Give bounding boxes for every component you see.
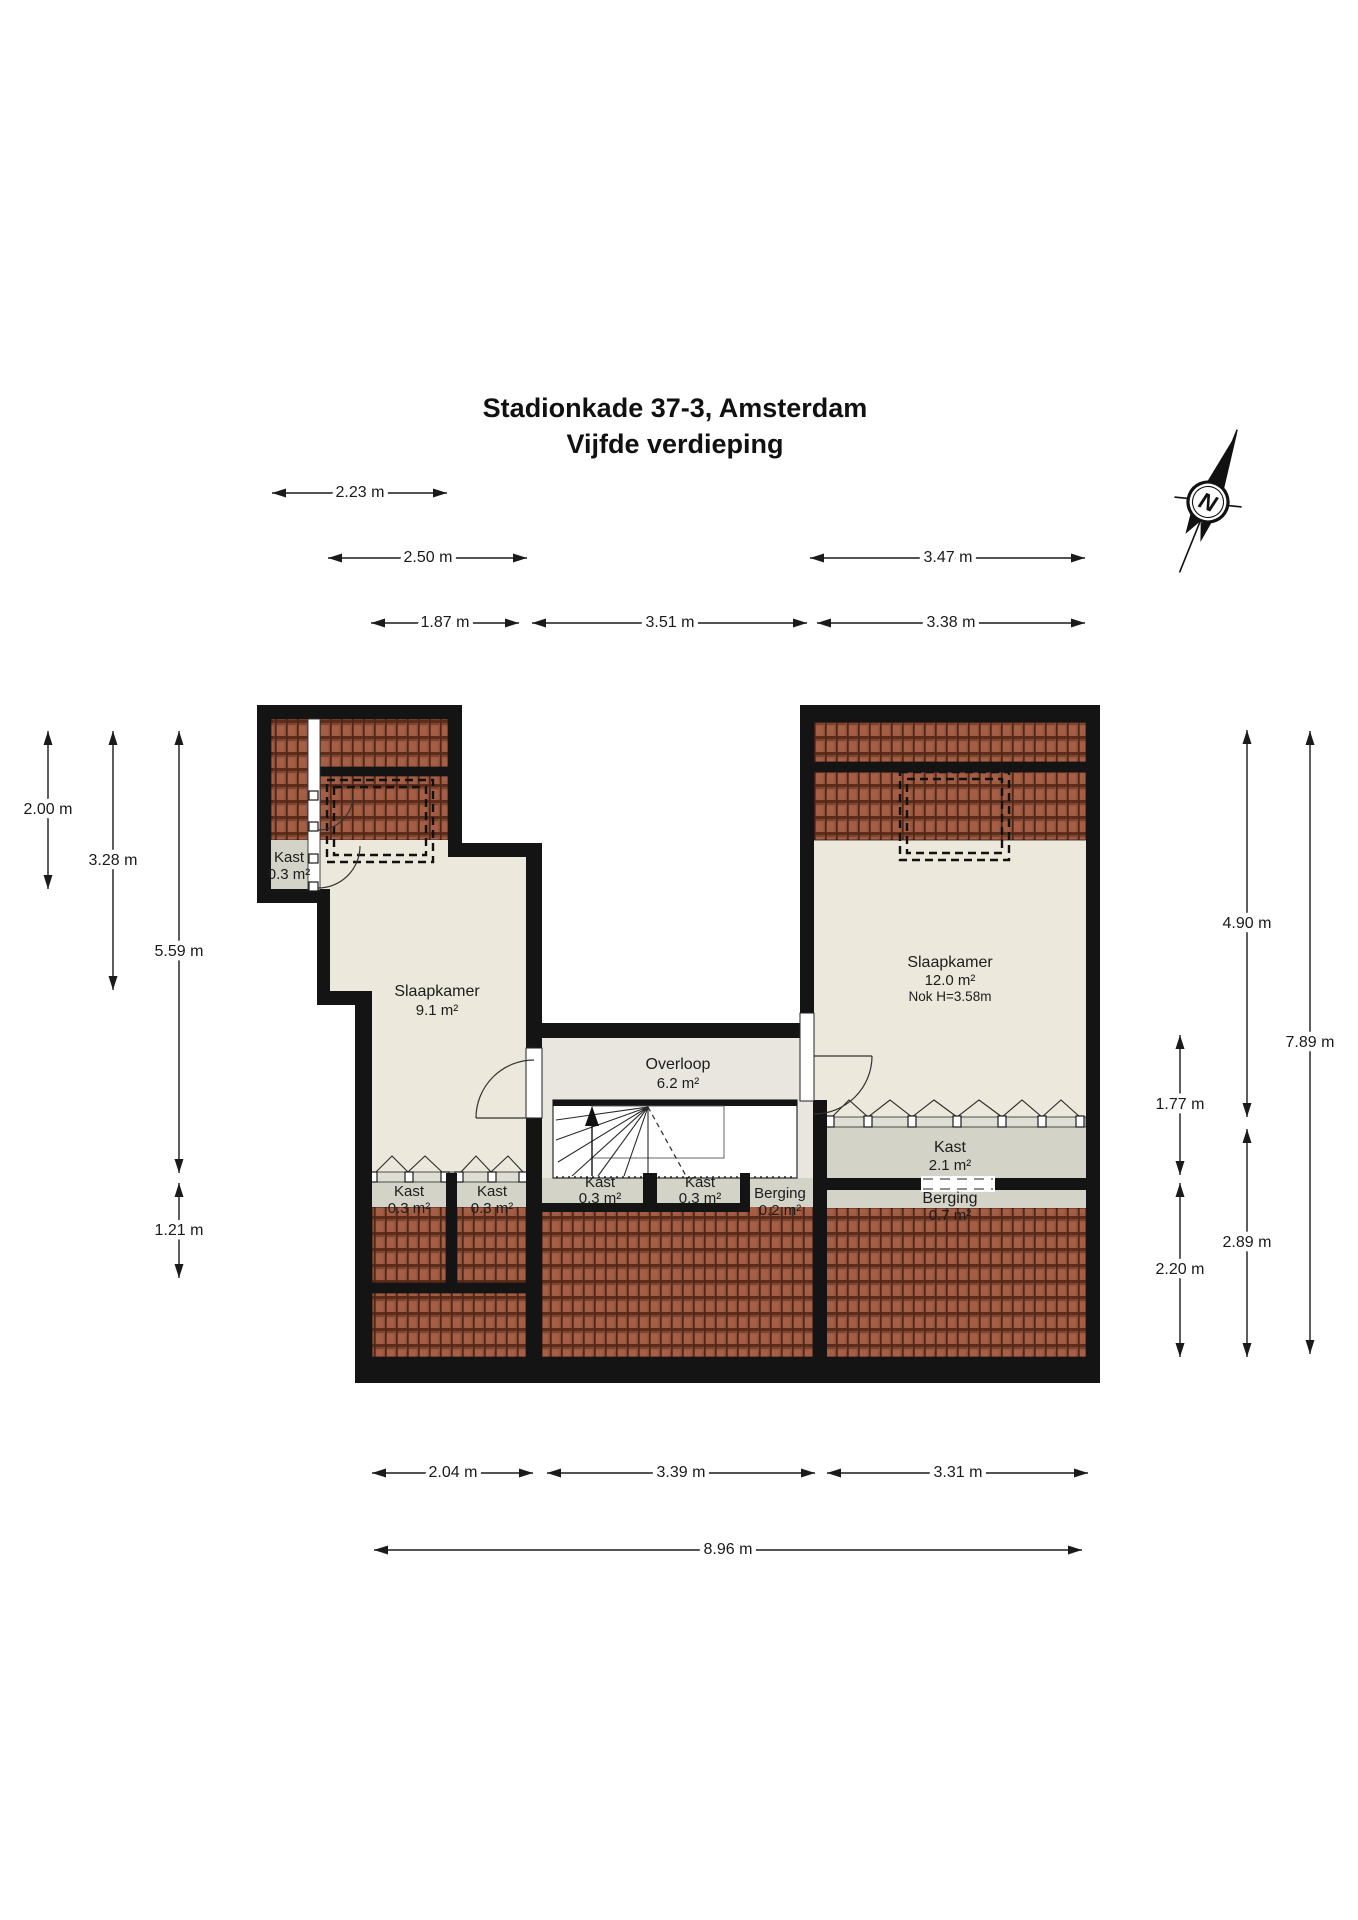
window-post [1076, 1116, 1084, 1127]
dim-label: 7.89 m [1286, 1034, 1335, 1051]
dim-label: 3.47 m [924, 549, 973, 566]
dimension-top-1-87: 1.87 m [371, 614, 519, 631]
dimension-right-1-77: 1.77 m [1156, 1035, 1205, 1175]
dim-label: 3.39 m [657, 1464, 706, 1481]
window-post [405, 1172, 413, 1182]
compass-rose: N [1149, 417, 1268, 585]
roof-area-bottom-center [542, 1203, 813, 1357]
dimension-top-3-38: 3.38 m [817, 614, 1085, 631]
roof-area-left-strip [271, 719, 309, 840]
room-label-overloop: Overloop [646, 1056, 711, 1073]
wall [800, 1000, 813, 1014]
roof-ridge-left [320, 767, 448, 776]
wall [446, 1173, 457, 1283]
roof-area-right-upper [814, 722, 1086, 762]
room-label-slaapkamer-right: Slaapkamer [907, 954, 993, 971]
dimension-right-7-89: 7.89 m [1286, 731, 1335, 1354]
stairs-box [553, 1100, 797, 1178]
dimension-lines: 2.23 m 2.50 m 3.47 m 1.87 m 3.51 m [24, 484, 1335, 1558]
room-area-kast2: 0.3 m² [471, 1200, 514, 1217]
dim-label: 1.77 m [1156, 1096, 1205, 1113]
room-label-kast3: Kast [585, 1174, 616, 1191]
wall [1086, 705, 1100, 1383]
window-post [826, 1116, 834, 1127]
window-post [953, 1116, 961, 1127]
dim-label: 2.23 m [336, 484, 385, 501]
room-area-kast4: 0.3 m² [679, 1190, 722, 1207]
room-note-slaapkamer-right: Nok H=3.58m [909, 989, 992, 1004]
dimension-left-1-21: 1.21 m [155, 1183, 204, 1278]
wall [813, 1100, 827, 1383]
dim-label: 3.31 m [934, 1464, 983, 1481]
room-label-slaapkamer-left: Slaapkamer [394, 983, 480, 1000]
dim-label: 8.96 m [704, 1541, 753, 1558]
dim-label: 2.00 m [24, 801, 73, 818]
room-label-kast-attic: Kast [274, 849, 305, 866]
roof-area-right-lower [814, 772, 1086, 840]
window-post [864, 1116, 872, 1127]
room-label-kast1: Kast [394, 1183, 425, 1200]
window-post [309, 854, 318, 863]
room-area-kast1: 0.3 m² [388, 1200, 431, 1217]
room-label-kast4: Kast [685, 1174, 716, 1191]
wall [448, 705, 462, 857]
roof-area-under-kast2 [457, 1207, 526, 1283]
door-frame-right-bedroom [800, 1013, 814, 1101]
window-post [309, 822, 318, 831]
room-area-kast-attic: 0.3 m² [268, 866, 311, 883]
dim-label: 3.38 m [927, 614, 976, 631]
door-frame-left-bedroom [526, 1048, 542, 1118]
dim-label: 2.20 m [1156, 1261, 1205, 1278]
window-post [998, 1116, 1006, 1127]
title-line-1: Stadionkade 37-3, Amsterdam [483, 393, 868, 423]
room-label-berging-small: Berging [754, 1185, 806, 1202]
room-area-kast-right: 2.1 m² [929, 1157, 972, 1174]
dimension-bottom-3-39: 3.39 m [547, 1464, 815, 1481]
roof-area-under-kast1 [372, 1207, 446, 1283]
page-title: Stadionkade 37-3, Amsterdam Vijfde verdi… [483, 393, 868, 459]
title-line-2: Vijfde verdieping [566, 429, 783, 459]
dimension-left-2-00: 2.00 m [24, 731, 73, 889]
wall [800, 705, 814, 1013]
wall [357, 1357, 1100, 1383]
room-area-berging-small: 0.2 m² [759, 1202, 802, 1219]
dim-label: 3.28 m [89, 852, 138, 869]
kast-attic-partition [308, 719, 320, 890]
stairs [553, 1100, 797, 1178]
dimension-left-5-59: 5.59 m [155, 731, 204, 1173]
room-area-overloop: 6.2 m² [657, 1075, 700, 1092]
wall [257, 705, 462, 719]
dimension-top-3-51: 3.51 m [532, 614, 807, 631]
dimension-top-2-50: 2.50 m [328, 549, 527, 566]
dim-label: 1.21 m [155, 1222, 204, 1239]
dim-label: 2.50 m [404, 549, 453, 566]
room-area-berging-right: 0.7 m² [929, 1207, 972, 1224]
dimension-top-3-47: 3.47 m [810, 549, 1085, 566]
dim-label: 4.90 m [1223, 915, 1272, 932]
dim-label: 1.87 m [421, 614, 470, 631]
wall [800, 705, 1100, 722]
dimension-bottom-2-04: 2.04 m [372, 1464, 533, 1481]
floorplan-page: Stadionkade 37-3, Amsterdam Vijfde verdi… [0, 0, 1358, 1920]
roof-area-left-upper [320, 719, 448, 767]
window-post [309, 882, 318, 891]
dimension-right-2-20: 2.20 m [1156, 1183, 1205, 1357]
room-label-berging-right: Berging [922, 1190, 977, 1207]
wall [355, 991, 372, 1383]
dim-label: 2.89 m [1223, 1234, 1272, 1251]
dimension-bottom-3-31: 3.31 m [827, 1464, 1088, 1481]
dimension-left-3-28: 3.28 m [89, 731, 138, 990]
window-post [1038, 1116, 1046, 1127]
dim-label: 5.59 m [155, 943, 204, 960]
roof-ridge-right [814, 762, 1086, 772]
wall [317, 889, 330, 1005]
wall [526, 1023, 814, 1038]
roof-area-left-lower [320, 776, 448, 840]
wall [372, 1283, 526, 1293]
window-post [519, 1172, 527, 1182]
roof-area-bottom-left [372, 1293, 526, 1357]
stairs-top-edge [553, 1100, 797, 1106]
window-post [908, 1116, 916, 1127]
dimension-top-2-23: 2.23 m [272, 484, 447, 501]
room-label-kast2: Kast [477, 1183, 508, 1200]
room-label-kast-right: Kast [934, 1139, 967, 1156]
dim-label: 3.51 m [646, 614, 695, 631]
dimension-right-2-89: 2.89 m [1223, 1129, 1272, 1357]
dimension-bottom-8-96: 8.96 m [374, 1541, 1082, 1558]
room-area-kast3: 0.3 m² [579, 1190, 622, 1207]
floorplan-canvas: Stadionkade 37-3, Amsterdam Vijfde verdi… [0, 0, 1358, 1920]
window-post [488, 1172, 496, 1182]
room-area-slaapkamer-left: 9.1 m² [416, 1002, 459, 1019]
roof-area-bottom-right [813, 1208, 1086, 1357]
dimension-right-4-90: 4.90 m [1223, 730, 1272, 1117]
room-area-slaapkamer-right: 12.0 m² [925, 972, 976, 989]
window-post [309, 791, 318, 800]
dim-label: 2.04 m [429, 1464, 478, 1481]
